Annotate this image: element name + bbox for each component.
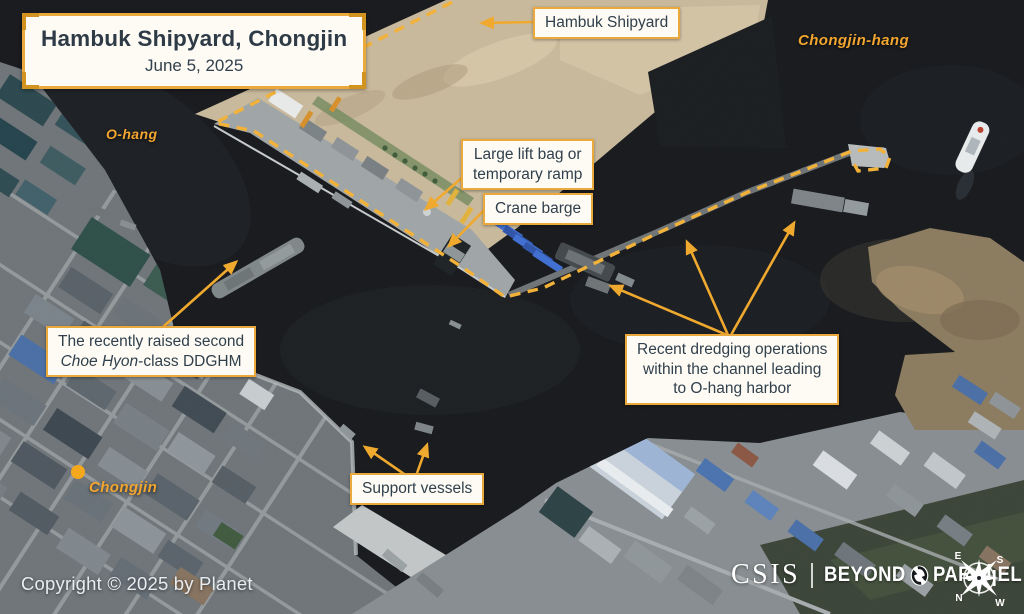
- label-line: The recently raised second: [58, 332, 244, 352]
- label-text: Support vessels: [362, 480, 472, 497]
- satellite-basemap: [0, 0, 1024, 614]
- label-line: Recent dredging operations: [637, 340, 827, 360]
- map-date: June 5, 2025: [41, 56, 347, 76]
- corner-accent: [349, 13, 366, 30]
- label-text: Hambuk Shipyard: [545, 14, 668, 31]
- corner-accent: [22, 13, 39, 30]
- beyond-text: BEYOND: [824, 563, 906, 587]
- corner-accent: [349, 72, 366, 89]
- beyond-parallel-icon: [909, 564, 929, 587]
- label-text: -class DDGHM: [138, 353, 241, 370]
- label-line: Large lift bag or: [473, 145, 582, 165]
- logo-divider: [811, 563, 813, 588]
- label-ddghm: The recently raised second Choe Hyon-cla…: [46, 326, 256, 377]
- label-dredging: Recent dredging operations within the ch…: [625, 334, 839, 405]
- map-title: Hambuk Shipyard, Chongjin: [41, 26, 347, 52]
- compass-rose-icon: E S N W: [946, 546, 1014, 612]
- label-text: Crane barge: [495, 200, 581, 217]
- label-line: within the channel leading: [637, 360, 827, 380]
- copyright-text: Copyright © 2025 by Planet: [21, 573, 253, 595]
- compass-west: W: [995, 598, 1005, 609]
- label-line: temporary ramp: [473, 165, 582, 185]
- title-box: Hambuk Shipyard, Chongjin June 5, 2025: [22, 13, 366, 89]
- csis-wordmark: CSIS: [731, 559, 800, 591]
- ship-class-name: Choe Hyon: [61, 353, 139, 370]
- place-label-o-hang: O-hang: [106, 126, 157, 142]
- label-line: to O-hang harbor: [637, 379, 827, 399]
- chongjin-marker-dot: [71, 465, 85, 479]
- compass-south: S: [997, 555, 1004, 566]
- corner-accent: [22, 72, 39, 89]
- annotated-satellite-graphic: Hambuk Shipyard, Chongjin June 5, 2025 H…: [0, 0, 1024, 614]
- compass-east: E: [955, 551, 962, 562]
- compass-north: N: [955, 593, 962, 604]
- label-crane-barge: Crane barge: [483, 193, 593, 225]
- label-lift-bag: Large lift bag or temporary ramp: [461, 139, 594, 190]
- label-line: Choe Hyon-class DDGHM: [58, 352, 244, 372]
- photo-grain: [0, 0, 1024, 614]
- place-label-chongjin-city: Chongjin: [89, 479, 157, 496]
- place-label-chongjin-hang: Chongjin-hang: [798, 32, 909, 49]
- label-hambuk-shipyard: Hambuk Shipyard: [533, 7, 680, 39]
- label-support-vessels: Support vessels: [350, 473, 484, 505]
